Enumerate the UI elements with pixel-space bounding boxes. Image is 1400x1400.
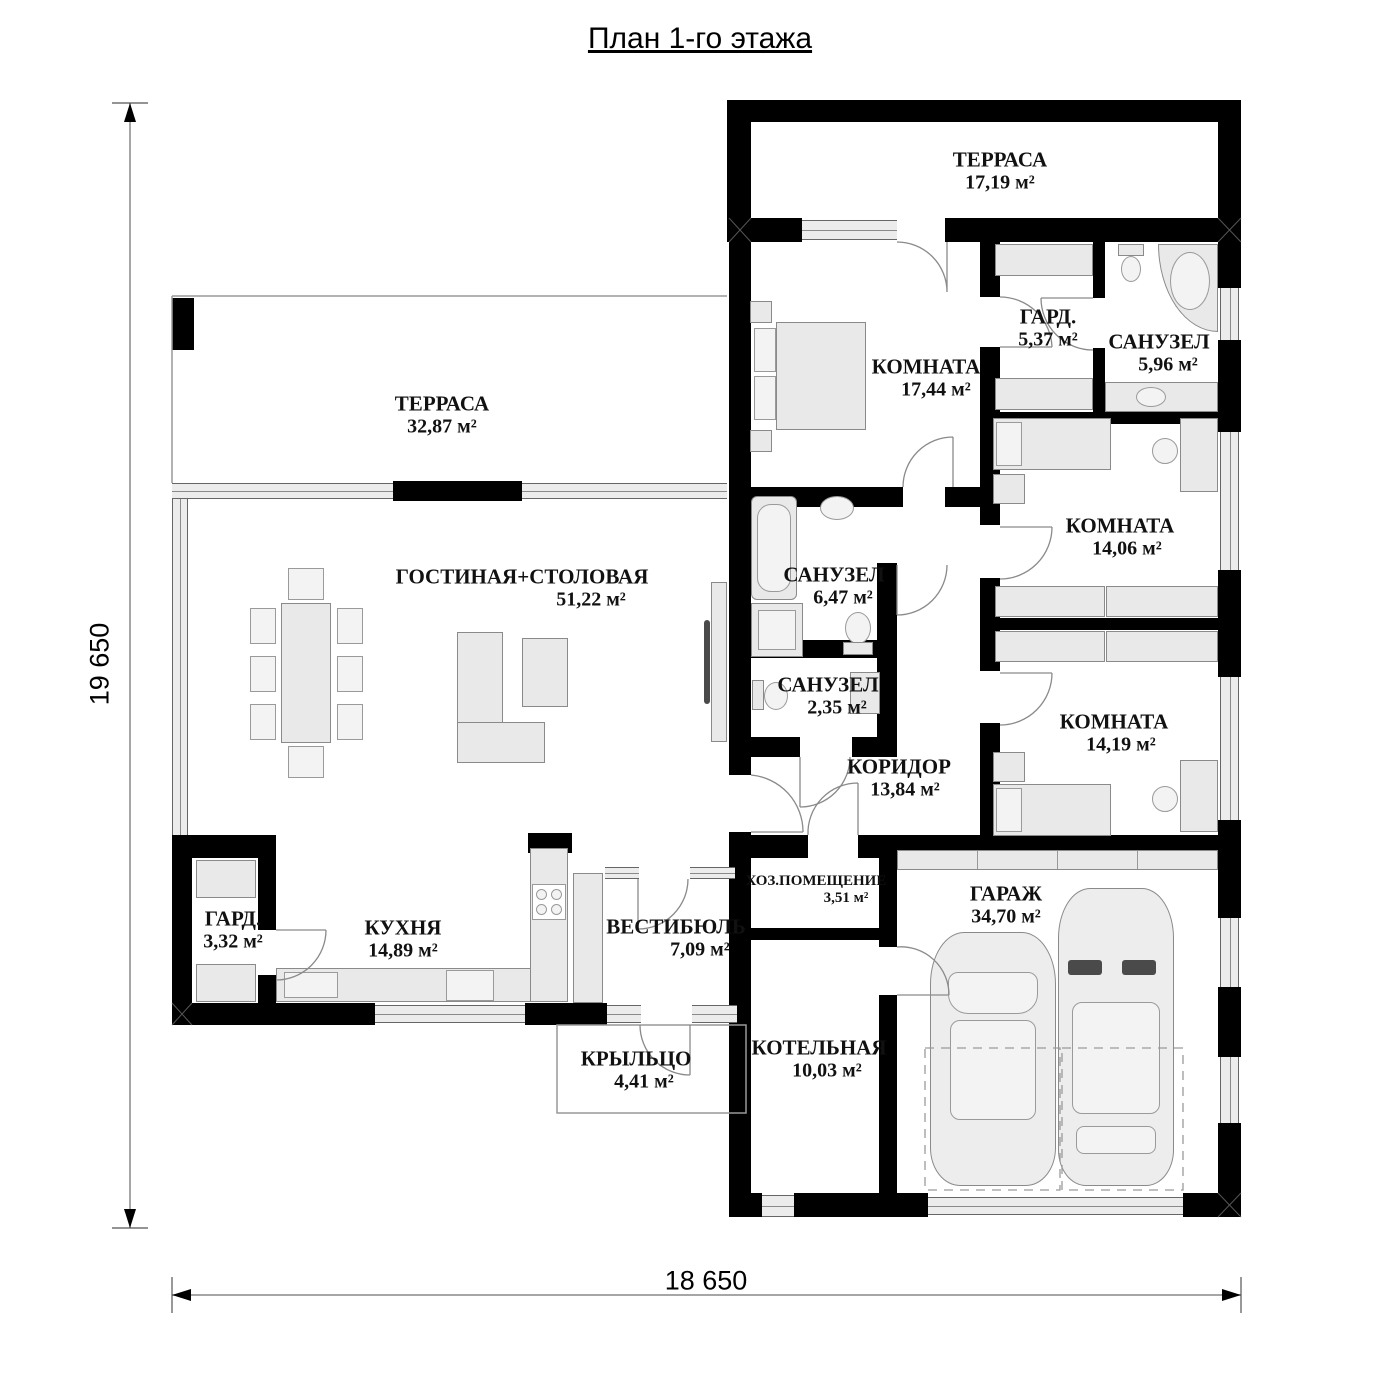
room-area: 34,70 м² [970,906,1042,929]
room-name: ТЕРРАСА [953,147,1047,171]
window [1220,432,1239,570]
room-name: КОРИДОР [847,754,951,778]
room-area: 32,87 м² [395,416,489,439]
room-label-room-1406: КОМНАТА 14,06 м² [1066,513,1175,560]
window [172,499,188,835]
kitchen-column [530,848,568,1002]
wall [1093,348,1105,412]
window [802,220,897,240]
vestibule-cabinet [573,873,603,1003]
pillow [754,328,776,372]
toilet-tank [1118,244,1144,256]
coffee-table [522,638,568,707]
burner [551,904,562,915]
room-name: КУХНЯ [365,915,442,939]
room-area: 3,32 м² [203,931,263,954]
wardrobe [995,586,1105,617]
room-label-kitchen: КУХНЯ 14,89 м² [365,915,442,962]
window [522,483,727,499]
dimension-vertical: 19 650 [85,623,116,706]
garage-shelf [897,850,1218,870]
wall [1218,100,1241,288]
window [692,1005,737,1023]
room-name: ТЕРРАСА [395,391,489,415]
wall [729,1193,762,1217]
burner [536,904,547,915]
window [1220,1057,1239,1123]
room-area: 17,19 м² [953,172,1047,195]
room-name: КОТЕЛЬНАЯ [752,1035,887,1059]
corner-bathtub-inner [1170,252,1210,310]
shower-inner [758,610,796,650]
room-label-boiler: КОТЕЛЬНАЯ 10,03 м² [752,1035,887,1082]
room-name: САНУЗЕЛ [1108,329,1209,353]
wardrobe [995,631,1105,662]
window [690,867,735,879]
toilet [1121,256,1141,282]
room-area: 14,06 м² [1080,538,1175,561]
pillow [996,788,1022,832]
room-label-wardrobe-332: ГАРД. 3,32 м² [203,906,263,953]
window [607,1005,641,1023]
window [172,483,393,499]
garage-door [928,1197,1183,1215]
wall [1218,340,1241,432]
room-area: 10,03 м² [768,1060,887,1083]
room-label-room-1419: КОМНАТА 14,19 м² [1060,709,1169,756]
room-name: ГАРАЖ [970,881,1042,905]
wall [172,1003,375,1025]
room-name: САНУЗЕЛ [783,562,884,586]
room-label-porch: КРЫЛЬЦО 4,41 м² [581,1046,692,1093]
bed [776,322,866,430]
fridge [446,970,494,1001]
room-name: КОМНАТА [872,354,981,378]
room-label-bathroom-596: САНУЗЕЛ 5,96 м² [1108,329,1209,376]
chair [1152,786,1178,812]
sink [1136,387,1166,407]
chair [288,746,324,778]
room-label-bathroom-647: САНУЗЕЛ 6,47 м² [783,562,884,609]
wardrobe [1106,586,1218,617]
chair [250,656,276,692]
desk [1180,760,1218,832]
car-windshield [948,972,1038,1014]
toilet-tank [843,642,873,655]
nightstand [750,430,772,452]
room-area: 5,37 м² [1018,329,1078,352]
wall [751,835,808,858]
sofa [457,722,545,763]
toilet [845,612,871,644]
window [1220,677,1239,820]
desk [1180,418,1218,492]
kitchen-sink [284,972,338,998]
chair [337,608,363,644]
room-area: 17,44 м² [892,379,981,402]
room-label-utility: ХОЗ.ПОМЕЩЕНИЕ 3,51 м² [746,873,887,908]
room-name: ГОСТИНАЯ+СТОЛОВАЯ [396,564,649,588]
room-label-living: ГОСТИНАЯ+СТОЛОВАЯ 51,22 м² [396,564,649,611]
nightstand [750,301,772,323]
wall [172,835,192,1025]
room-area: 14,19 м² [1074,734,1169,757]
wall [727,100,1241,122]
chair [337,656,363,692]
wall [794,1193,928,1217]
room-label-corridor: КОРИДОР 13,84 м² [847,754,951,801]
wardrobe [1106,631,1218,662]
room-area: 51,22 м² [534,589,649,612]
wall [737,1003,751,1025]
room-label-wardrobe-537: ГАРД. 5,37 м² [1018,304,1078,351]
pillow [996,422,1022,466]
page-title: План 1-го этажа [588,22,812,56]
wall [1218,570,1241,677]
car-roof [1072,1002,1160,1114]
room-label-terrace-top: ТЕРРАСА 17,19 м² [953,147,1047,194]
chair [1152,438,1178,464]
window [375,1005,525,1023]
chair [337,704,363,740]
wall [1218,987,1241,1057]
room-area: 6,47 м² [801,587,884,610]
room-label-garage: ГАРАЖ 34,70 м² [970,881,1042,928]
wardrobe-shelf [995,378,1093,410]
chair [288,568,324,600]
wall [751,737,800,757]
dining-table [281,603,331,743]
window [1220,288,1239,340]
plan-annotations [0,0,1400,1400]
car-vent [1122,960,1156,975]
room-area: 14,89 м² [365,940,442,963]
window [605,867,639,879]
room-area: 13,84 м² [859,779,951,802]
nightstand [993,752,1025,782]
room-name: ВЕСТИБЮЛЬ [606,914,746,938]
room-area: 7,09 м² [654,939,746,962]
room-label-terrace-left: ТЕРРАСА 32,87 м² [395,391,489,438]
wall [1093,242,1105,298]
wall [1000,618,1218,630]
window [1220,918,1239,987]
room-label-vestibule: ВЕСТИБЮЛЬ 7,09 м² [606,914,746,961]
floor-plan-canvas: План 1-го этажа [0,0,1400,1400]
window [762,1195,794,1217]
room-area: 4,41 м² [597,1071,692,1094]
room-name: ГАРД. [1018,304,1078,328]
wall [727,100,751,232]
room-name: ГАРД. [203,906,263,930]
room-name: КОМНАТА [1066,513,1175,537]
tv [704,620,710,704]
room-label-bathroom-235: САНУЗЕЛ 2,35 м² [777,672,878,719]
wall [751,928,879,940]
wardrobe-shelf [196,860,256,898]
room-area: 3,51 м² [806,890,887,907]
burner [551,889,562,900]
toilet-tank [752,680,764,710]
car-vent [1068,960,1102,975]
tv-cabinet [711,582,727,742]
sink [820,496,854,520]
room-name: ХОЗ.ПОМЕЩЕНИЕ [746,873,887,890]
room-name: САНУЗЕЛ [777,672,878,696]
wall [729,232,751,775]
wall [393,481,522,501]
wall [258,975,276,1005]
dimension-horizontal: 18 650 [665,1266,748,1297]
room-name: КРЫЛЬЦО [581,1046,692,1070]
car-roof [950,1020,1036,1120]
wall [172,298,194,350]
nightstand [993,474,1025,504]
room-area: 2,35 м² [795,697,878,720]
wardrobe-shelf [995,244,1093,276]
chair [250,704,276,740]
pillow [754,376,776,420]
burner [536,889,547,900]
chair [250,608,276,644]
wall [172,835,276,858]
wall [945,218,1241,242]
wall [525,1003,607,1025]
room-area: 5,96 м² [1126,354,1209,377]
room-name: КОМНАТА [1060,709,1169,733]
room-label-bedroom: КОМНАТА 17,44 м² [872,354,981,401]
car-rear-window [1076,1126,1156,1154]
wall [879,995,897,1193]
wardrobe-shelf [196,964,256,1002]
wall [1183,1193,1241,1217]
